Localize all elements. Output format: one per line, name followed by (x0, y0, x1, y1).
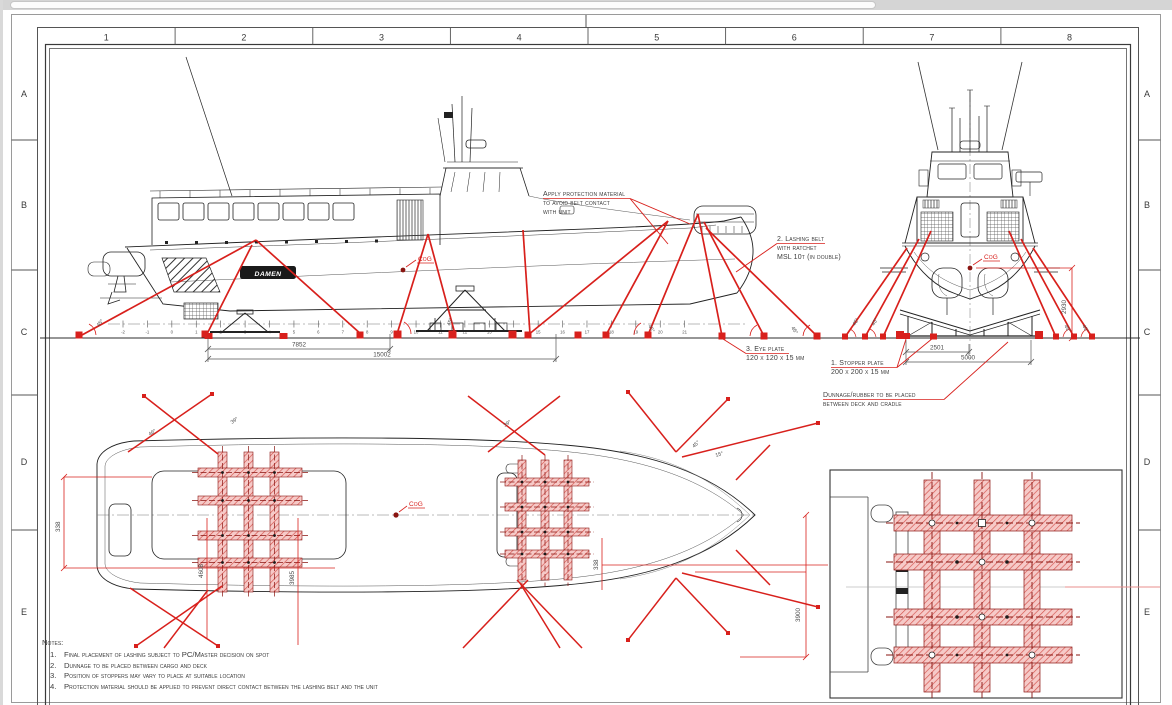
sheet-row-label: B (21, 200, 27, 210)
station-number: 7 (342, 330, 345, 335)
dim-front-outer: 5000 (961, 355, 976, 362)
stern-outboard-engines (88, 252, 162, 304)
sheet-row-label: C (21, 327, 28, 337)
sheet-row-label: E (21, 607, 27, 617)
station-number: 8 (366, 330, 369, 335)
svg-text:with ratchet: with ratchet (777, 245, 817, 252)
note-text: Protection material should be applied to… (64, 682, 474, 693)
sheet-column-label: 7 (929, 33, 934, 43)
sheet-row-label: A (21, 89, 27, 99)
angle-label: 45° (1062, 324, 1071, 334)
angle-label: 39° (503, 419, 513, 428)
station-number: 5 (293, 330, 296, 335)
front-view: 45° 45° 45° 45° CoG 2501 5000 (823, 62, 1140, 408)
station-number: 20 (658, 330, 663, 335)
notes-items: 1.Final placement of lashing subject to … (42, 650, 474, 693)
lashing-belts-front (845, 231, 1092, 337)
sheet-column-label: 8 (1067, 33, 1072, 43)
angle-label: 45° (871, 317, 880, 327)
drawing-viewer: 12345678 ABCDE ABCDE -2-1012345678910111… (0, 0, 1172, 705)
dim-plan-len2: 3985 (289, 570, 296, 585)
sheet-column-label: 6 (792, 33, 797, 43)
station-number: 21 (682, 330, 687, 335)
svg-text:with unit: with unit (543, 209, 571, 216)
sheet-column-label: 4 (517, 33, 522, 43)
station-number: 16 (560, 330, 565, 335)
sheet-row-label: A (1144, 89, 1150, 99)
note-number: 2. (42, 661, 64, 672)
annotation-stopper-plate: 1. Stopper plate 200 x 200 x 15 mm (831, 338, 933, 376)
angle-label: 39° (230, 416, 240, 425)
note-item: 2.Dunnage to be placed between cargo and… (42, 661, 474, 672)
sheet-row-label: D (1144, 457, 1151, 467)
note-text: Final placement of lashing subject to PC… (64, 650, 474, 661)
notes-block: Notes: 1.Final placement of lashing subj… (42, 638, 474, 693)
dim-side-outer: 15002 (373, 352, 391, 359)
sheet-column-label: 2 (241, 33, 246, 43)
sheet-row-label: B (1144, 200, 1150, 210)
angle-label: 15° (715, 451, 724, 459)
svg-text:2. Lashing belt: 2. Lashing belt (777, 236, 824, 243)
note-item: 1.Final placement of lashing subject to … (42, 650, 474, 661)
dim-front-inner: 2501 (930, 345, 945, 352)
station-number: -1 (146, 330, 150, 335)
cog-label: CoG (418, 256, 432, 263)
angle-label: 46° (148, 428, 158, 437)
dim-plan-left: 338 (55, 521, 62, 532)
dim-plan-right: 338 (593, 559, 600, 570)
dim-plan-len1: 4608 (198, 563, 205, 578)
side-view: -2-10123456789101112131415161718192021 (40, 57, 846, 362)
svg-text:Apply protection material: Apply protection material (543, 191, 625, 198)
station-number: 1 (195, 330, 198, 335)
svg-text:MSL 10t (in double): MSL 10t (in double) (777, 254, 841, 261)
station-number: 18 (609, 330, 614, 335)
svg-text:120 x 120 x 15 mm: 120 x 120 x 15 mm (746, 355, 804, 362)
superstructure (150, 187, 442, 245)
sheet-row-label: D (21, 457, 28, 467)
station-number: 17 (585, 330, 590, 335)
annotation-protection: Apply protection material to avoid belt … (543, 191, 690, 244)
angle-label: 45° (789, 326, 798, 336)
note-item: 3.Position of stoppers may vary to place… (42, 671, 474, 682)
lashing-lines-plan (128, 392, 818, 648)
sheet-row-labels-right: ABCDE (1144, 89, 1151, 617)
svg-text:3. Eye plate: 3. Eye plate (746, 346, 785, 353)
cradle-detail-box (830, 470, 1160, 698)
station-number: 0 (171, 330, 174, 335)
dim-plan-bow: 3900 (795, 607, 802, 622)
station-number: 6 (317, 330, 320, 335)
svg-text:between deck and cradle: between deck and cradle (823, 401, 902, 408)
angle-label: 45° (96, 318, 106, 328)
mast-and-antennas (918, 62, 1022, 152)
bow-fender (694, 206, 756, 234)
note-number: 1. (42, 650, 64, 661)
sheet-row-label: C (1144, 327, 1151, 337)
angle-label: 45° (691, 440, 701, 450)
detail-grid (886, 472, 1080, 698)
svg-text:Dunnage/rubber to be placed: Dunnage/rubber to be placed (823, 392, 916, 399)
plan-view: 46° 39° 39° 45° 15° CoG (55, 390, 828, 660)
notes-title: Notes: (42, 638, 474, 649)
sheet-row-labels-left: ABCDE (21, 89, 28, 617)
cog-label: CoG (409, 501, 423, 508)
sheet-column-label: 3 (379, 33, 384, 43)
dim-front-height: 2930 (1061, 299, 1068, 314)
svg-text:to avoid belt contact: to avoid belt contact (543, 200, 610, 207)
note-text: Dunnage to be placed between cargo and d… (64, 661, 474, 672)
sheet-column-label: 1 (104, 33, 109, 43)
annotation-eye-plate: 3. Eye plate 120 x 120 x 15 mm (723, 339, 804, 362)
sheet-column-label: 5 (654, 33, 659, 43)
note-item: 4.Protection material should be applied … (42, 682, 474, 693)
sheet-row-label: E (1144, 607, 1150, 617)
lashing-endpoints-plan (134, 390, 820, 648)
station-number: 15 (536, 330, 541, 335)
svg-text:200 x 200 x 15 mm: 200 x 200 x 15 mm (831, 369, 889, 376)
note-number: 4. (42, 682, 64, 693)
cog-label: CoG (984, 254, 998, 261)
station-number: -2 (121, 330, 125, 335)
note-number: 3. (42, 671, 64, 682)
dim-side-inner: 7852 (292, 342, 307, 349)
note-text: Position of stoppers may vary to place a… (64, 671, 474, 682)
lashing-plan-drawing: 12345678 ABCDE ABCDE -2-1012345678910111… (0, 0, 1172, 705)
keel-grille (184, 303, 218, 319)
svg-text:1. Stopper plate: 1. Stopper plate (831, 360, 884, 367)
angle-label: 45° (852, 317, 861, 327)
station-number: 9 (390, 330, 393, 335)
brand-logo-text: DAMEN (255, 271, 283, 278)
